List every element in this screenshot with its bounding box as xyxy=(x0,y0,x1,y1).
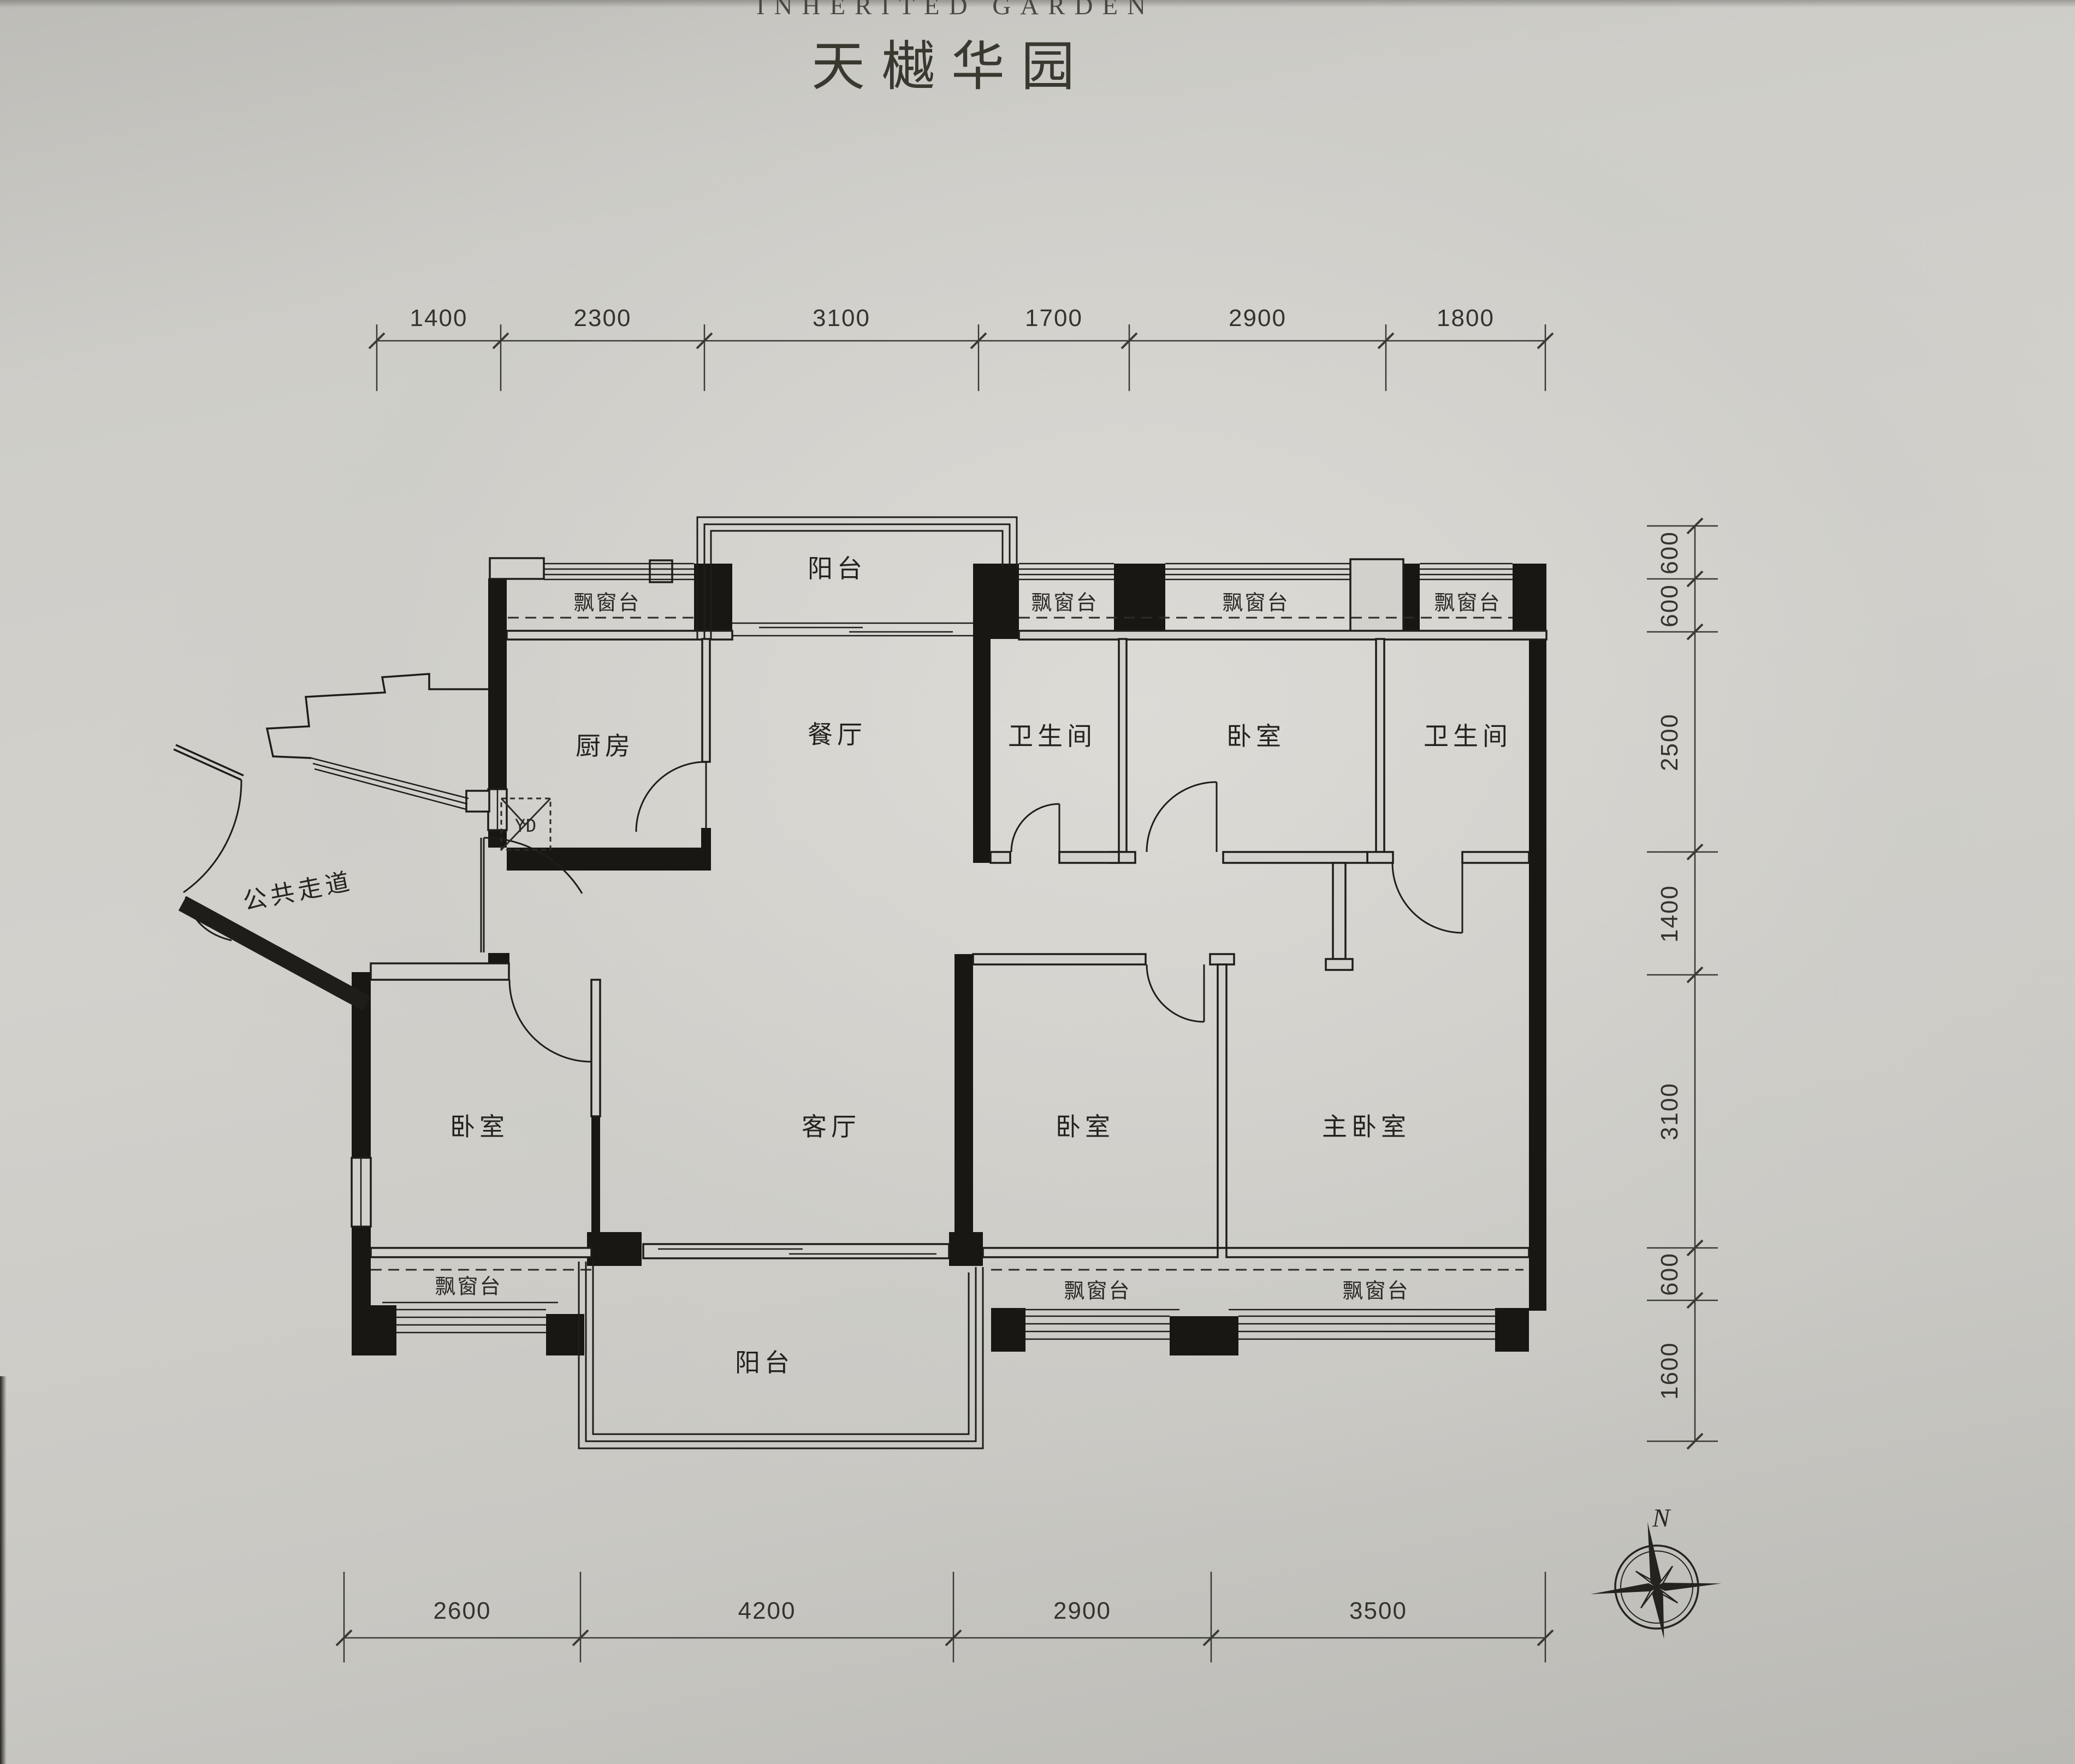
floor-plan-photo: { "title": { "en": "INHERITED GARDEN", "… xyxy=(0,0,2075,1764)
balcony-rails xyxy=(579,517,1017,1448)
photo-edge-shadow xyxy=(0,1376,7,1764)
room-label-bedroom-mid: 卧室 xyxy=(1056,1107,1114,1143)
balcony-label-top: 阳台 xyxy=(808,549,867,585)
door-arcs xyxy=(183,762,1462,1062)
room-label-kitchen: 厨房 xyxy=(576,726,635,762)
dim-right-6: 1600 xyxy=(1656,1342,1683,1400)
wall-fills xyxy=(352,564,1546,1355)
bay-window-label-bedroom-top: 飘窗台 xyxy=(1222,586,1289,616)
room-label-dining: 餐厅 xyxy=(808,715,867,751)
bay-window-label-bath1: 飘窗台 xyxy=(1031,586,1098,616)
balcony-label-bottom: 阳台 xyxy=(735,1343,794,1379)
room-label-bathroom-1: 卫生间 xyxy=(1008,717,1096,753)
bay-window-label-bedroom-mid: 飘窗台 xyxy=(1064,1274,1131,1304)
dim-bottom-2: 2900 xyxy=(1053,1597,1111,1625)
dimension-lines xyxy=(336,324,1718,1662)
dim-bottom-3: 3500 xyxy=(1349,1597,1407,1625)
dim-top-5: 1800 xyxy=(1437,305,1495,332)
dim-right-3: 1400 xyxy=(1656,885,1683,943)
dim-right-4: 3100 xyxy=(1656,1082,1683,1140)
room-label-bedroom-top: 卧室 xyxy=(1226,717,1285,753)
dim-right-1: 600 xyxy=(1656,584,1683,627)
dim-bottom-0: 2600 xyxy=(434,1597,491,1625)
public-corridor-walls xyxy=(174,674,488,1004)
dim-top-2: 3100 xyxy=(813,305,870,332)
bay-sill-dashed-lines xyxy=(371,618,1523,1270)
dim-right-0: 600 xyxy=(1656,531,1683,574)
photo-edge-shadow-top xyxy=(0,0,2075,8)
dim-top-4: 2900 xyxy=(1229,305,1286,332)
dim-right-2: 2500 xyxy=(1656,713,1683,771)
bay-window-label-master: 飘窗台 xyxy=(1342,1274,1409,1304)
dim-right-5: 600 xyxy=(1656,1252,1683,1295)
thin-walls xyxy=(352,558,1546,1258)
room-label-master-bedroom: 主卧室 xyxy=(1322,1107,1410,1143)
yd-box-label: YD xyxy=(515,815,537,836)
room-label-bedroom-left: 卧室 xyxy=(450,1107,509,1143)
dim-bottom-1: 4200 xyxy=(738,1597,796,1625)
room-label-living: 客厅 xyxy=(802,1107,861,1143)
dim-top-0: 1400 xyxy=(410,305,468,332)
bay-window-label-kitchen: 飘窗台 xyxy=(573,586,641,616)
dim-top-1: 2300 xyxy=(574,305,632,332)
bay-window-label-bedroom-left: 飘窗台 xyxy=(435,1270,502,1300)
room-label-bathroom-2: 卫生间 xyxy=(1424,717,1512,753)
dim-top-3: 1700 xyxy=(1025,305,1083,332)
bay-window-label-bath2: 飘窗台 xyxy=(1434,586,1501,616)
compass-icon xyxy=(1581,1513,1728,1648)
compass-north-label: N xyxy=(1652,1503,1670,1534)
